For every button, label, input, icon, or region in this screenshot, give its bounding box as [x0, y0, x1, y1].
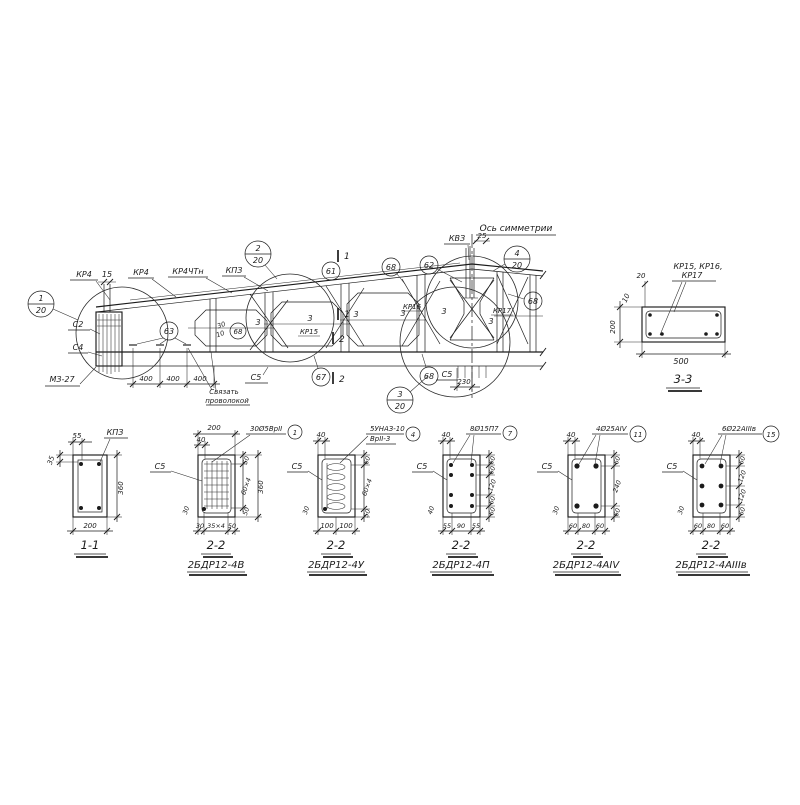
s3-dim-bottom-1: 100 [320, 522, 334, 530]
cut-1-top: 1 [344, 252, 350, 262]
s5-dim-bottom-3: 60 [596, 522, 604, 530]
s33-rebar-label-2: КР17 [682, 271, 704, 280]
s33-rebar-label-1: КР15, КР16, [674, 262, 723, 271]
dim-400-3: 400 [193, 375, 207, 383]
s3-subtitle: 2БДР12-4У [308, 560, 365, 571]
s4-title: 2-2 [452, 538, 471, 552]
s2-title: 2-2 [207, 538, 226, 552]
dim-15: 15 [102, 270, 112, 279]
s5-c5-label: С5 [542, 462, 553, 471]
s5-dim-left: 30 [551, 505, 561, 516]
s4-dim-right-2: 60 [487, 465, 497, 476]
s1-callout: КПЗ [107, 428, 124, 437]
section-2-2-4v: 200 40 30Ø5ВрII 1 С5 50 60×4 50 [150, 424, 302, 575]
s6-dim-bottom-3: 60 [721, 522, 729, 530]
balloon-68c: 68 [424, 372, 434, 381]
detail-number: 4 [514, 249, 519, 258]
s4-dim-left: 40 [426, 505, 436, 516]
c5-left-label: С5 [251, 373, 262, 382]
s4-dim-bottom-1: 55 [443, 522, 451, 530]
s6-title: 2-2 [702, 538, 721, 552]
s5-dim-right-2: 240 [611, 479, 623, 493]
s3-dim-bottom-2: 100 [339, 522, 353, 530]
s2-dim-bottom-1: 30 [196, 522, 204, 530]
small-dim-10: 10 [215, 329, 226, 339]
balloon-62: 62 [424, 261, 434, 270]
s3-badge: 4 [411, 431, 415, 439]
mark-kr4-2: КР4 [133, 268, 149, 277]
s3-dim-right-1: 60 [362, 455, 372, 466]
s6-dim-left: 30 [676, 505, 686, 516]
cut-2-bot: 2 [339, 375, 345, 385]
detail-number: 1 [38, 294, 43, 303]
symmetry-axis-label: Ось симметрии [476, 224, 556, 235]
s3-dim-top: 40 [317, 431, 326, 439]
balloon-67: 67 [316, 373, 327, 382]
bar3-2: 3 [307, 314, 312, 323]
balloon-61: 61 [326, 267, 336, 276]
detail-number: 3 [397, 390, 402, 399]
s3-dim-right-3: 50 [362, 508, 372, 519]
s3-callout: 5УНАЗ-10 [370, 425, 405, 433]
s5-subtitle: 2БДР12-4АIV [553, 560, 621, 571]
elevation-drawing: Ось симметрии 1 20 2 20 3 [28, 224, 556, 413]
s33-dim-10: 10 [621, 292, 632, 304]
s1-dim-top: 55 [73, 432, 82, 440]
kr17-label: КР17 [493, 307, 512, 315]
s33-dim-20: 20 [637, 272, 646, 280]
s5-dim-right-1: 60 [612, 455, 622, 466]
tie-note-line1: Связать [209, 388, 238, 396]
s4-dim-right-1: 60 [487, 455, 497, 466]
s5-callout: 4Ø25АIV [596, 425, 628, 433]
c5-and-230: С5 С5 230 [245, 367, 480, 391]
section-2-2-4a3v: 40 6Ø22АIIIв 15 С5 60 120 120 60 [662, 425, 779, 575]
s4-callout: 8Ø15П7 [470, 425, 499, 433]
mark-kr4chtn: КР4ЧТн [172, 267, 203, 276]
s1-title: 1-1 [81, 538, 100, 552]
section-2-2-4a4: 40 4Ø25АIV 11 С5 60 240 60 [537, 425, 646, 575]
bar3-1: 3 [255, 318, 260, 327]
s2-dim-right-3: 50 [241, 506, 251, 517]
detail-scale: 20 [36, 306, 46, 315]
detail-badge-1: 1 20 [28, 291, 78, 320]
s4-dim-bottom-3: 55 [472, 522, 480, 530]
mesh-bars [204, 461, 229, 509]
s3-dim-right-2: 60×4 [360, 478, 374, 498]
drawing-sheet: Ось симметрии 1 20 2 20 3 [0, 0, 800, 800]
section-2-2-4p: 40 8Ø15П7 7 С5 60 60 120 [412, 425, 517, 575]
bar3-6: 3 [488, 317, 493, 326]
dim-230: 230 [457, 378, 471, 386]
s6-dim-right-3: 120 [736, 488, 748, 502]
balloon-68a: 68 [386, 263, 396, 272]
m3-27-label: МЗ-27 [49, 375, 75, 384]
s2-subtitle: 2БДР12-4В [188, 560, 245, 571]
kv3-callout: КВЗ 25 [444, 232, 490, 260]
s3-callout2: ВрII-3 [370, 435, 390, 443]
detail-scale: 20 [512, 261, 522, 270]
s1-dim-bottom: 200 [83, 522, 97, 530]
s2-dim-right-2: 60×4 [239, 477, 253, 497]
dim-400-1: 400 [139, 375, 153, 383]
s2-dim-top: 200 [207, 424, 221, 432]
cut-2-mid: 2 [339, 335, 345, 345]
s3-c5-label: С5 [292, 462, 303, 471]
top-mark-labels: КР4 15 КР4 КР4ЧТн КПЗ [70, 266, 268, 300]
dim-400-2: 400 [166, 375, 180, 383]
s5-badge: 11 [634, 431, 643, 439]
s3-title: 2-2 [327, 538, 346, 552]
s33-title: 3-3 [674, 372, 693, 386]
s2-dim-right-total: 360 [257, 480, 265, 494]
mark-kp3: КПЗ [226, 266, 243, 275]
cut-1-mid: 1 [344, 310, 350, 320]
mark-kr4-1: КР4 [76, 270, 92, 279]
s4-dim-bottom-2: 90 [457, 522, 465, 530]
s5-title: 2-2 [577, 538, 596, 552]
s3-dim-left: 30 [301, 505, 311, 516]
s2-badge: 1 [293, 429, 297, 437]
s2-dim-top2: 40 [197, 436, 206, 444]
s6-dim-top: 40 [692, 431, 701, 439]
s2-dim-left: 30 [181, 505, 191, 516]
section-3-3: КР15, КР16, КР17 20 10 200 500 3-3 [609, 262, 731, 391]
s1-dim-right: 360 [117, 481, 125, 495]
tie-note-line2: проволокой [205, 397, 249, 405]
s5-dim-bottom-1: 60 [569, 522, 577, 530]
balloon-68b: 68 [528, 297, 538, 306]
s6-badge: 15 [767, 431, 776, 439]
bar-labels: 3 3 КР15 3 3 КР16 3 3 КР17 [255, 303, 513, 336]
detail-scale: 20 [253, 256, 263, 265]
s33-dim-500: 500 [673, 357, 688, 366]
wire-loops [327, 463, 345, 509]
section-2-2-4u: 40 5УНАЗ-10 ВрII-3 4 С5 60 60×4 50 [287, 425, 420, 575]
s2-c5-label: С5 [155, 462, 166, 471]
s4-badge: 7 [508, 430, 513, 438]
s4-dim-right-5: 60 [487, 506, 497, 517]
bar3-5: 3 [441, 307, 446, 316]
kv3-label: КВЗ [449, 234, 465, 243]
dim-25: 25 [478, 232, 487, 240]
detail-number: 2 [255, 244, 260, 253]
left-labels: С2 С4 МЗ-27 [45, 320, 102, 386]
s4-subtitle: 2БДР12-4П [432, 560, 490, 571]
section-1-1: 55 КПЗ 35 360 200 1-1 [46, 428, 128, 557]
beam-outline [96, 263, 546, 370]
s33-dim-200: 200 [609, 320, 617, 334]
balloon-63: 63 [164, 327, 174, 336]
s6-dim-bottom-2: 80 [707, 522, 715, 530]
s6-dim-bottom-1: 60 [694, 522, 702, 530]
detail-badge-2: 2 20 [245, 241, 277, 279]
s2-dim-bottom-2: 35×4 [207, 522, 225, 530]
s6-callout: 6Ø22АIIIв [722, 425, 756, 433]
s1-dim-left: 35 [46, 454, 57, 466]
s4-dim-right-4: 60 [487, 495, 497, 506]
s5-dim-right-3: 60 [612, 507, 622, 518]
s4-dim-right-3: 120 [486, 478, 498, 492]
s6-dim-right-4: 60 [737, 506, 747, 517]
s5-dim-bottom-2: 80 [582, 522, 590, 530]
detail-badge-4: 4 20 [493, 246, 530, 272]
s2-dim-bottom-3: 50 [228, 522, 236, 530]
s5-dim-top: 40 [567, 431, 576, 439]
balloon-68d: 68 [234, 328, 243, 336]
s6-c5-label: С5 [667, 462, 678, 471]
c4-label: С4 [73, 343, 84, 352]
kr16-label: КР16 [403, 303, 422, 311]
c5-right-label: С5 [442, 370, 453, 379]
s2-dim-right-1: 50 [241, 455, 251, 466]
cross-sections: 55 КПЗ 35 360 200 1-1 [46, 424, 779, 575]
s6-subtitle: 2БДР12-4АIIIв [675, 560, 746, 571]
s4-c5-label: С5 [417, 462, 428, 471]
bar3-3: 3 [353, 310, 358, 319]
c2-label: С2 [73, 320, 84, 329]
axis-label: Ось симметрии [480, 224, 553, 234]
s6-dim-right-1: 60 [737, 455, 747, 466]
s6-dim-right-2: 120 [736, 469, 748, 483]
lattice-web [129, 246, 543, 378]
s2-callout: 30Ø5ВрII [250, 425, 282, 433]
detail-scale: 20 [395, 402, 405, 411]
left-end-block [96, 284, 122, 374]
kr15-label: КР15 [300, 328, 319, 336]
structural-drawing-svg: Ось симметрии 1 20 2 20 3 [0, 0, 800, 800]
s4-dim-top: 40 [442, 431, 451, 439]
dim-400-group: 400 400 400 [127, 348, 220, 388]
